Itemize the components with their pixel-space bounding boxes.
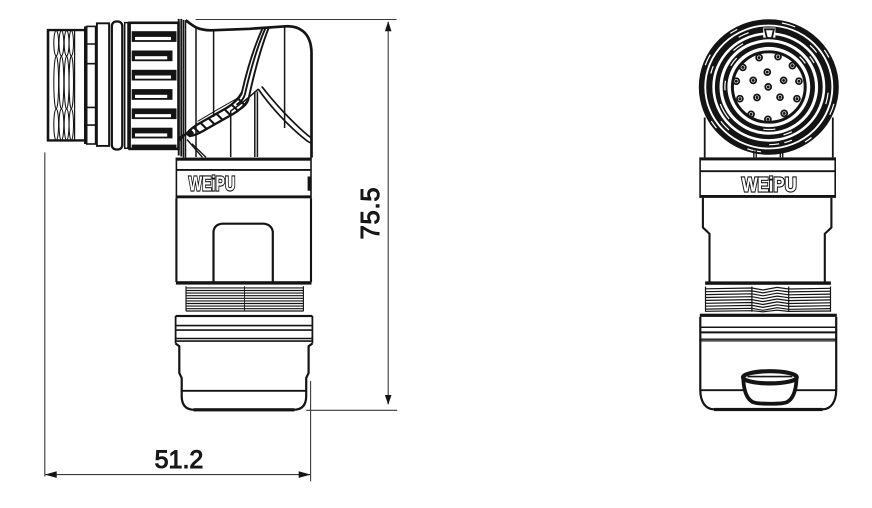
- svg-text:75.5: 75.5: [357, 187, 385, 240]
- svg-text:WEiPU: WEiPU: [189, 173, 236, 195]
- svg-text:WEiPU: WEiPU: [742, 175, 797, 197]
- svg-text:51.2: 51.2: [155, 446, 204, 474]
